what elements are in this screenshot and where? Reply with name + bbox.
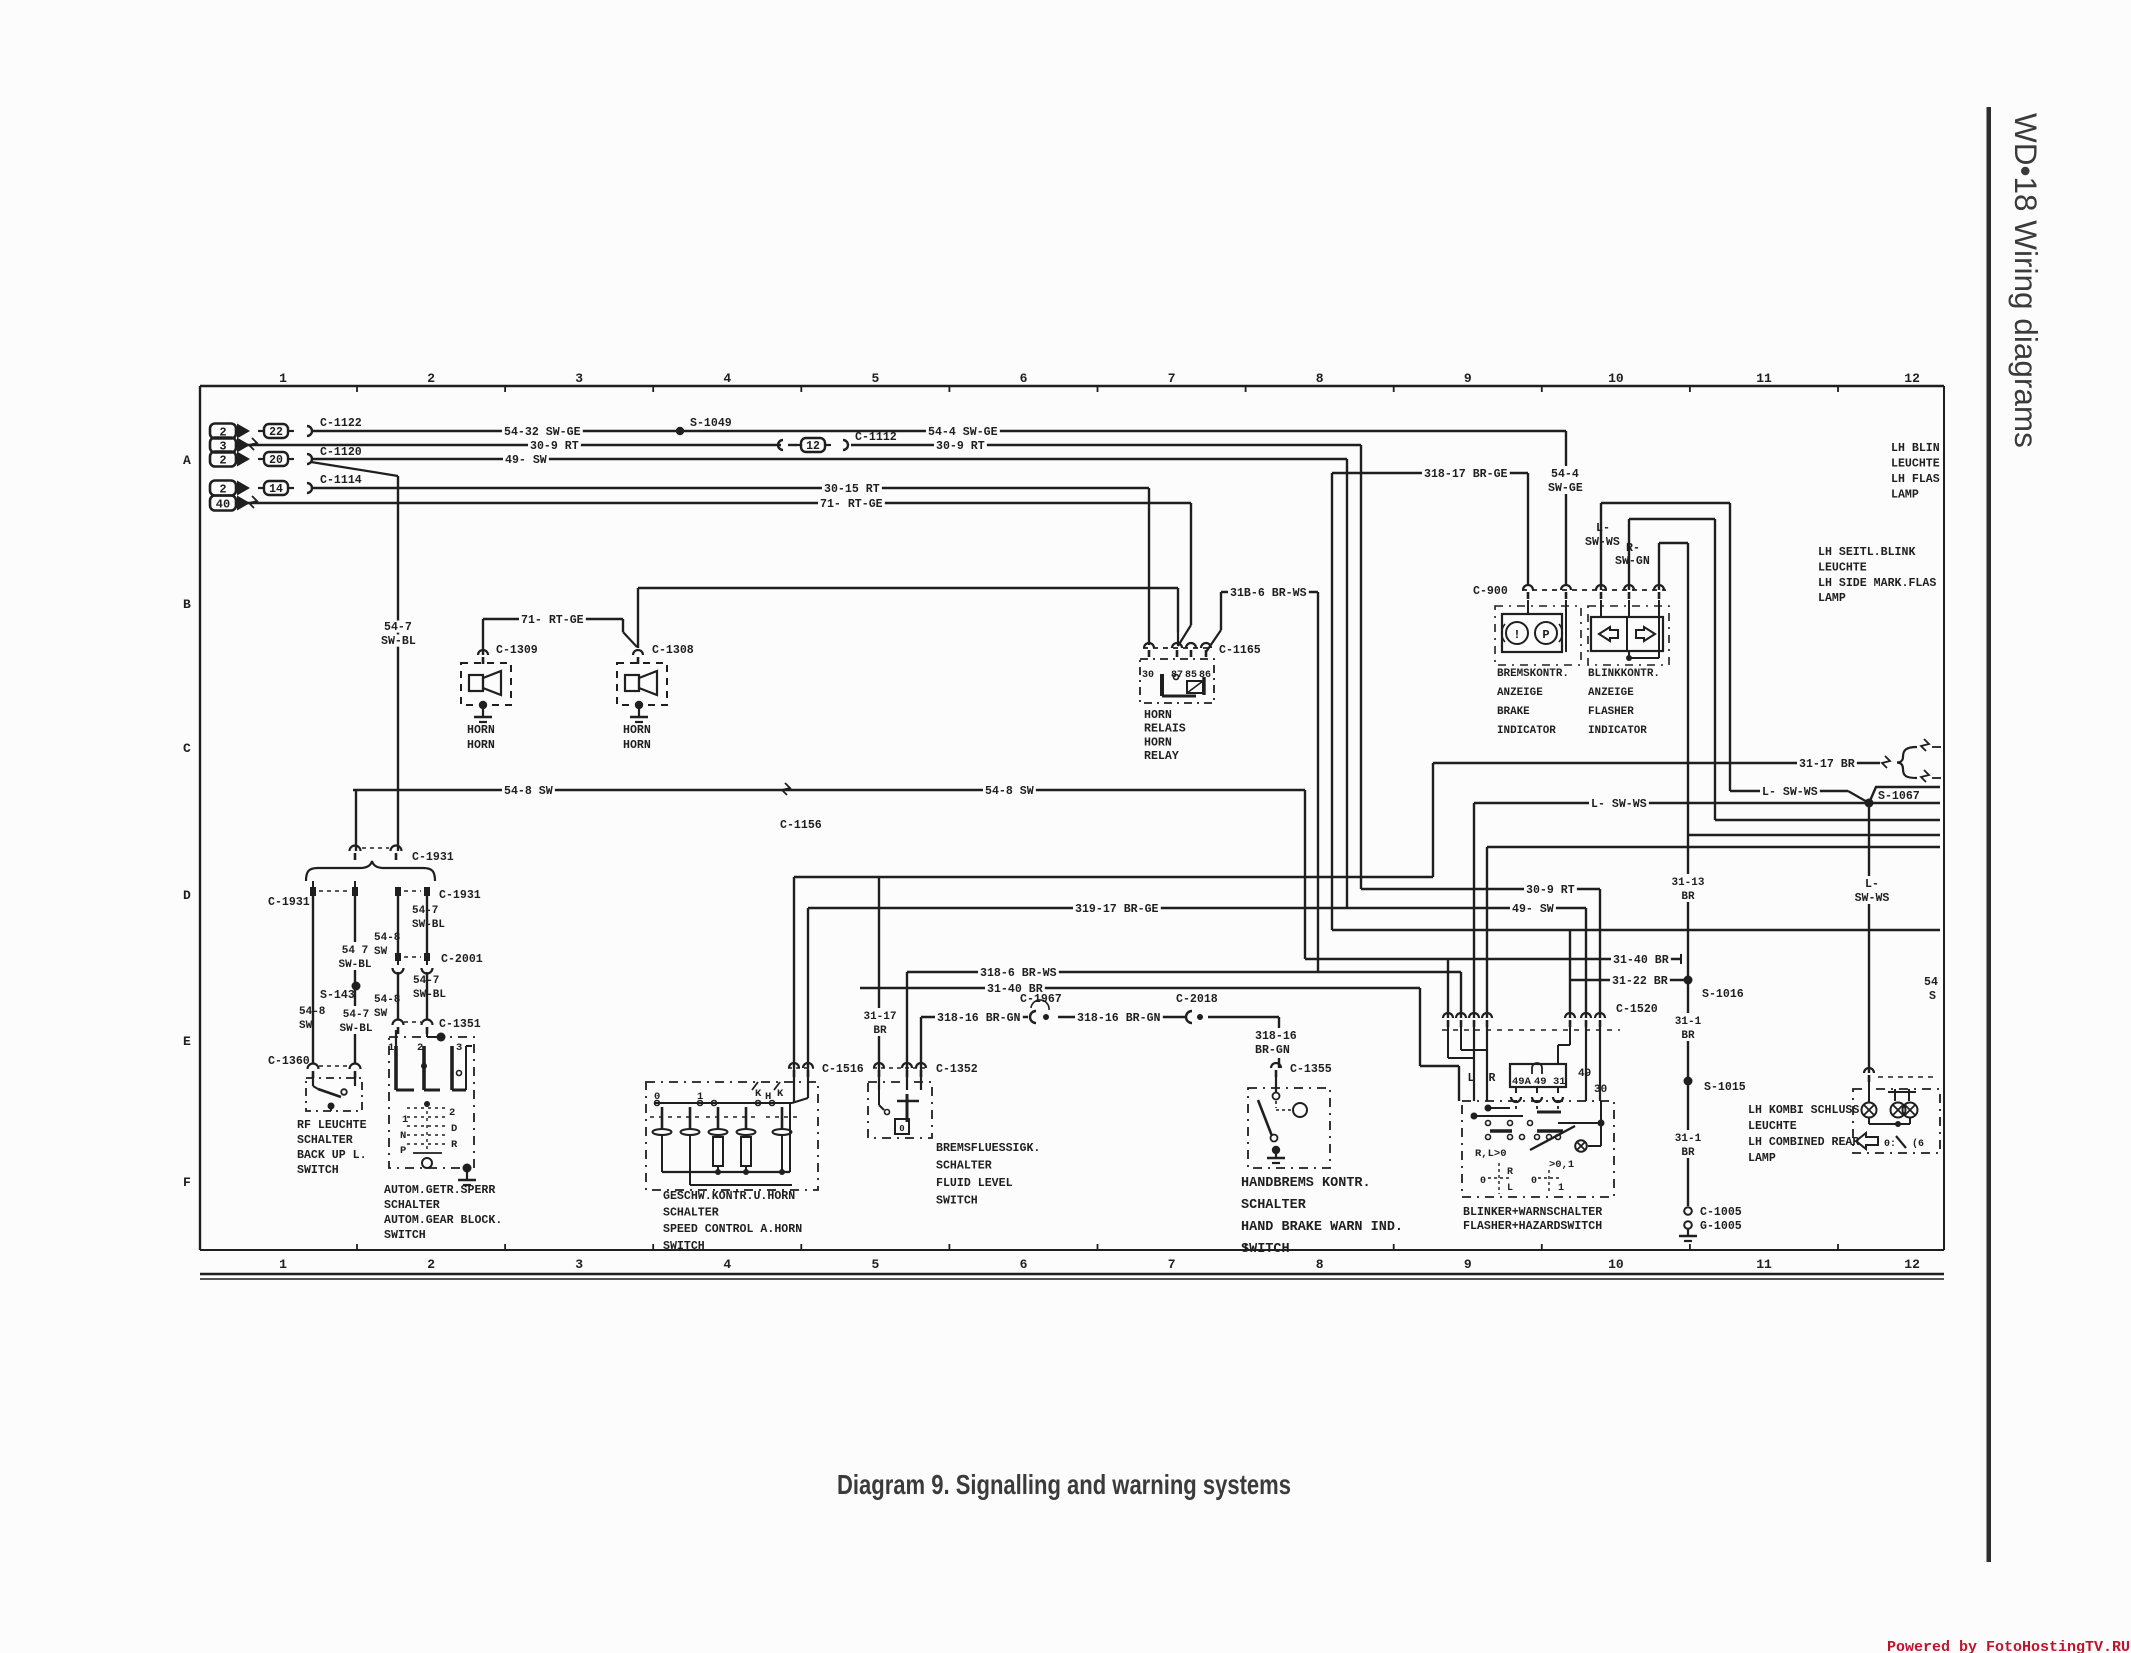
svg-text:54-7: 54-7 — [384, 621, 412, 634]
svg-text:SCHALTER: SCHALTER — [663, 1207, 719, 1220]
svg-text:7: 7 — [1168, 371, 1176, 386]
svg-text:SCHALTER: SCHALTER — [936, 1160, 992, 1173]
svg-text:C-1309: C-1309 — [496, 644, 538, 657]
svg-text:HORN: HORN — [623, 724, 651, 737]
svg-text:0: 0 — [1531, 1176, 1537, 1187]
svg-text:SW: SW — [374, 946, 388, 958]
svg-text:(6: (6 — [1912, 1138, 1924, 1150]
svg-text:30-15 RT: 30-15 RT — [824, 483, 880, 496]
svg-text:RF LEUCHTE: RF LEUCHTE — [297, 1119, 367, 1132]
svg-text:LH SEITL.BLINK: LH SEITL.BLINK — [1818, 546, 1915, 559]
svg-text:HORN: HORN — [623, 739, 651, 752]
svg-text:0: 0 — [899, 1124, 904, 1134]
svg-text:SWITCH: SWITCH — [384, 1229, 426, 1242]
svg-text:C-900: C-900 — [1473, 585, 1508, 598]
svg-text:C-1352: C-1352 — [936, 1063, 978, 1076]
svg-text:SW: SW — [374, 1008, 388, 1020]
svg-text:SPEED CONTROL A.HORN: SPEED CONTROL A.HORN — [663, 1223, 802, 1236]
svg-text:49- SW: 49- SW — [1512, 903, 1554, 916]
svg-text:LH COMBINED REAR: LH COMBINED REAR — [1748, 1136, 1859, 1149]
svg-text:54-7: 54-7 — [412, 905, 438, 917]
svg-text:C-1516: C-1516 — [822, 1063, 864, 1076]
svg-text:R: R — [1489, 1072, 1496, 1085]
svg-text:31-1: 31-1 — [1675, 1133, 1702, 1145]
svg-text:INDICATOR: INDICATOR — [1497, 725, 1556, 737]
svg-text:6: 6 — [1020, 1257, 1028, 1272]
svg-text:12: 12 — [806, 440, 820, 453]
svg-text:D: D — [183, 888, 191, 903]
svg-text:5: 5 — [871, 371, 879, 386]
svg-text:HAND BRAKE WARN IND.: HAND BRAKE WARN IND. — [1241, 1220, 1403, 1235]
svg-text:C-1931: C-1931 — [412, 851, 454, 864]
svg-text:3: 3 — [575, 371, 583, 386]
svg-text:14: 14 — [269, 483, 283, 496]
svg-text:54-8: 54-8 — [374, 932, 401, 944]
svg-text:AUTOM.GEAR BLOCK.: AUTOM.GEAR BLOCK. — [384, 1214, 502, 1227]
svg-text:LEUCHTE: LEUCHTE — [1891, 458, 1940, 471]
svg-text:L-: L- — [1865, 878, 1879, 891]
svg-text:SCHALTER: SCHALTER — [1241, 1198, 1307, 1213]
svg-text:2: 2 — [427, 1257, 435, 1272]
svg-text:P: P — [1542, 628, 1549, 642]
svg-text:BLINKKONTR.: BLINKKONTR. — [1588, 668, 1660, 680]
svg-text:31-17 BR: 31-17 BR — [1799, 758, 1855, 771]
svg-text:SWITCH: SWITCH — [1241, 1242, 1290, 1257]
svg-text:71- RT-GE: 71- RT-GE — [521, 614, 584, 627]
svg-text:LEUCHTE: LEUCHTE — [1748, 1120, 1797, 1133]
svg-text:S-1067: S-1067 — [1878, 790, 1920, 803]
svg-text:49: 49 — [1578, 1068, 1591, 1080]
svg-text:S: S — [1929, 990, 1936, 1003]
svg-text:L- SW-WS: L- SW-WS — [1762, 786, 1818, 799]
svg-text:10: 10 — [1608, 371, 1624, 386]
svg-text:1: 1 — [402, 1114, 408, 1126]
svg-text:R,L>0: R,L>0 — [1475, 1148, 1507, 1160]
svg-text:12: 12 — [1904, 1257, 1920, 1272]
svg-text:85: 85 — [1185, 670, 1197, 681]
svg-text:SCHALTER: SCHALTER — [384, 1199, 440, 1212]
svg-text:BLINKER+WARNSCHALTER: BLINKER+WARNSCHALTER — [1463, 1206, 1602, 1219]
svg-text:54-8 SW: 54-8 SW — [504, 785, 553, 798]
svg-text:C-2018: C-2018 — [1176, 993, 1218, 1006]
svg-text:SWITCH: SWITCH — [663, 1240, 705, 1253]
svg-text:C: C — [183, 741, 191, 756]
svg-text:9: 9 — [1464, 371, 1472, 386]
svg-text:WD•18 Wiring diagrams: WD•18 Wiring diagrams — [2008, 113, 2044, 448]
svg-text:LH FLAS: LH FLAS — [1891, 473, 1940, 486]
svg-text:HANDBREMS KONTR.: HANDBREMS KONTR. — [1241, 1176, 1371, 1191]
svg-text:54-8 SW: 54-8 SW — [985, 785, 1034, 798]
svg-text:5: 5 — [871, 1257, 879, 1272]
svg-text:A: A — [183, 453, 191, 468]
svg-text:11: 11 — [1756, 1257, 1772, 1272]
svg-text:31-13: 31-13 — [1671, 877, 1704, 889]
svg-text:S-1016: S-1016 — [1702, 988, 1744, 1001]
svg-text:C-1520: C-1520 — [1616, 1003, 1658, 1016]
svg-text:6: 6 — [1020, 371, 1028, 386]
svg-text:HORN: HORN — [1144, 736, 1172, 749]
svg-text:BR: BR — [1681, 891, 1695, 903]
svg-text:INDICATOR: INDICATOR — [1588, 725, 1647, 737]
svg-text:30-9 RT: 30-9 RT — [1526, 884, 1575, 897]
svg-text:C-1931: C-1931 — [268, 896, 310, 909]
svg-text:30: 30 — [1142, 670, 1154, 681]
svg-text:Diagram 9. Signalling and warn: Diagram 9. Signalling and warning system… — [837, 1469, 1291, 1500]
svg-text:54-8: 54-8 — [299, 1006, 326, 1018]
svg-text:49A: 49A — [1512, 1076, 1532, 1088]
svg-text:4: 4 — [723, 1257, 731, 1272]
svg-text:C-1120: C-1120 — [320, 446, 362, 459]
svg-text:HORN: HORN — [467, 739, 495, 752]
svg-text:ANZEIGE: ANZEIGE — [1497, 687, 1543, 699]
svg-text:BRAKE: BRAKE — [1497, 706, 1530, 718]
svg-text:C-1122: C-1122 — [320, 417, 362, 430]
svg-text:C-1351: C-1351 — [439, 1018, 481, 1031]
svg-text:31-1: 31-1 — [1675, 1016, 1702, 1028]
svg-text:4: 4 — [723, 371, 731, 386]
svg-text:P: P — [400, 1145, 406, 1157]
svg-text:SCHALTER: SCHALTER — [297, 1134, 353, 1147]
svg-text:RELAY: RELAY — [1144, 750, 1179, 763]
svg-text:B: B — [183, 597, 191, 612]
svg-text:54-7: 54-7 — [343, 1009, 369, 1021]
svg-text:3: 3 — [575, 1257, 583, 1272]
svg-text:318-6 BR-WS: 318-6 BR-WS — [980, 967, 1057, 980]
svg-text:49: 49 — [1534, 1076, 1547, 1088]
svg-text:L-: L- — [1596, 522, 1610, 535]
svg-text:L: L — [1507, 1183, 1513, 1194]
svg-text:9: 9 — [1464, 1257, 1472, 1272]
svg-text:C-1112: C-1112 — [855, 431, 897, 444]
svg-text:11: 11 — [1756, 371, 1772, 386]
svg-text:LEUCHTE: LEUCHTE — [1818, 561, 1867, 574]
svg-text:FLASHER: FLASHER — [1588, 706, 1634, 718]
svg-text:49- SW: 49- SW — [505, 454, 547, 467]
svg-text:0: 0 — [1480, 1176, 1486, 1187]
svg-text:31-22 BR: 31-22 BR — [1612, 975, 1668, 988]
svg-text:SW-GN: SW-GN — [1615, 555, 1650, 568]
svg-text:318-17 BR-GE: 318-17 BR-GE — [1424, 468, 1508, 481]
svg-text:Powered by FotoHostingTV.RU: Powered by FotoHostingTV.RU — [1887, 1639, 2130, 1653]
svg-text:SWITCH: SWITCH — [936, 1195, 978, 1208]
svg-text:GESCHW.KONTR.U.HORN: GESCHW.KONTR.U.HORN — [663, 1190, 795, 1203]
svg-text:2: 2 — [449, 1107, 455, 1119]
svg-text:30: 30 — [1594, 1084, 1607, 1096]
svg-text:319-17 BR-GE: 319-17 BR-GE — [1075, 903, 1159, 916]
svg-text:S-1015: S-1015 — [1704, 1081, 1746, 1094]
svg-text:C-1005: C-1005 — [1700, 1206, 1742, 1219]
svg-text:SW-BL: SW-BL — [381, 635, 416, 648]
svg-text:C-1931: C-1931 — [439, 889, 481, 902]
svg-text:>0,1: >0,1 — [1549, 1159, 1574, 1171]
svg-text:SW-BL: SW-BL — [413, 989, 446, 1001]
svg-text:L: L — [1468, 1072, 1475, 1085]
svg-text:BR: BR — [1681, 1030, 1695, 1042]
svg-text:54: 54 — [1924, 976, 1938, 989]
svg-text:20: 20 — [269, 454, 283, 467]
svg-text:8: 8 — [1316, 1257, 1324, 1272]
svg-text:7: 7 — [1168, 1257, 1176, 1272]
svg-text:LAMP: LAMP — [1748, 1152, 1776, 1165]
svg-text:31-40 BR: 31-40 BR — [1613, 954, 1669, 967]
svg-text:1: 1 — [388, 1042, 394, 1054]
svg-text:54-4 SW-GE: 54-4 SW-GE — [928, 426, 998, 439]
svg-text:1: 1 — [279, 1257, 287, 1272]
svg-text:40: 40 — [216, 498, 230, 512]
svg-text:8: 8 — [1316, 371, 1324, 386]
svg-text:FLASHER+HAZARDSWITCH: FLASHER+HAZARDSWITCH — [1463, 1220, 1602, 1233]
svg-text:SW-BL: SW-BL — [338, 959, 371, 971]
svg-text:E: E — [183, 1034, 191, 1049]
svg-text:LH BLIN: LH BLIN — [1891, 442, 1940, 455]
svg-text:C-1114: C-1114 — [320, 474, 362, 487]
svg-text:30-9 RT: 30-9 RT — [530, 440, 579, 453]
svg-text:RELAIS: RELAIS — [1144, 723, 1186, 736]
svg-text:BREMSKONTR.: BREMSKONTR. — [1497, 668, 1569, 680]
svg-text:2: 2 — [427, 371, 435, 386]
svg-text:C-2001: C-2001 — [441, 953, 483, 966]
svg-text:K: K — [755, 1088, 762, 1100]
svg-text:R: R — [1507, 1167, 1513, 1178]
svg-text:R: R — [451, 1139, 458, 1151]
svg-text:SW-GE: SW-GE — [1548, 482, 1583, 495]
svg-text:318-16 BR-GN: 318-16 BR-GN — [937, 1012, 1021, 1025]
svg-text:S-143: S-143 — [320, 989, 355, 1002]
svg-text:D: D — [451, 1123, 457, 1135]
svg-text:C-1165: C-1165 — [1219, 644, 1261, 657]
svg-text:BR: BR — [873, 1025, 887, 1037]
svg-text:SW-BL: SW-BL — [412, 919, 445, 931]
svg-text:318-16 BR-GN: 318-16 BR-GN — [1077, 1012, 1161, 1025]
svg-text:SW-WS: SW-WS — [1585, 536, 1620, 549]
svg-text:0:: 0: — [1884, 1139, 1896, 1150]
svg-text:54 7: 54 7 — [342, 945, 368, 957]
svg-text:54-4: 54-4 — [1551, 468, 1579, 481]
svg-text:SW-WS: SW-WS — [1855, 892, 1890, 905]
svg-text:BREMSFLUESSIGK.: BREMSFLUESSIGK. — [936, 1142, 1040, 1155]
svg-text:22: 22 — [269, 426, 283, 439]
svg-text:SW-BL: SW-BL — [339, 1023, 372, 1035]
svg-text:71- RT-GE: 71- RT-GE — [820, 498, 883, 511]
svg-text:S-1049: S-1049 — [690, 417, 732, 430]
svg-text:F: F — [183, 1175, 191, 1190]
svg-text:AUTOM.GETR.SPERR: AUTOM.GETR.SPERR — [384, 1184, 495, 1197]
svg-text:SWITCH: SWITCH — [297, 1164, 339, 1177]
svg-text:31B-6 BR-WS: 31B-6 BR-WS — [1230, 587, 1307, 600]
svg-text:FLUID LEVEL: FLUID LEVEL — [936, 1177, 1013, 1190]
svg-text:30-9 RT: 30-9 RT — [936, 440, 985, 453]
svg-text:L- SW-WS: L- SW-WS — [1591, 798, 1647, 811]
svg-text:54-8: 54-8 — [374, 994, 401, 1006]
svg-text:SW: SW — [299, 1020, 313, 1032]
svg-text:C-1360: C-1360 — [268, 1055, 310, 1068]
svg-text:31-17: 31-17 — [863, 1011, 896, 1023]
svg-text:C-1308: C-1308 — [652, 644, 694, 657]
svg-text:C-1355: C-1355 — [1290, 1063, 1332, 1076]
svg-text:N: N — [400, 1130, 406, 1142]
svg-text:31: 31 — [1553, 1076, 1566, 1088]
svg-text:BR: BR — [1681, 1147, 1695, 1159]
svg-text:1: 1 — [1558, 1183, 1564, 1194]
svg-text:LAMP: LAMP — [1818, 592, 1846, 605]
svg-text:12: 12 — [1904, 371, 1920, 386]
svg-text:54-32 SW-GE: 54-32 SW-GE — [504, 426, 581, 439]
svg-text:1: 1 — [279, 371, 287, 386]
svg-text:K: K — [777, 1088, 784, 1100]
svg-text:BACK UP L.: BACK UP L. — [297, 1149, 367, 1162]
svg-text:ANZEIGE: ANZEIGE — [1588, 687, 1634, 699]
svg-text:LH KOMBI SCHLUSS: LH KOMBI SCHLUSS — [1748, 1104, 1859, 1117]
svg-text:G-1005: G-1005 — [1700, 1220, 1742, 1233]
svg-text:LAMP: LAMP — [1891, 489, 1919, 502]
svg-text:C-1967: C-1967 — [1020, 993, 1062, 1006]
svg-text:BR-GN: BR-GN — [1255, 1044, 1290, 1057]
svg-text:10: 10 — [1608, 1257, 1624, 1272]
svg-text:2: 2 — [219, 454, 226, 468]
svg-text:LH SIDE MARK.FLAS: LH SIDE MARK.FLAS — [1818, 577, 1936, 590]
svg-text:C-1156: C-1156 — [780, 819, 822, 832]
svg-text:3: 3 — [456, 1042, 462, 1054]
svg-text:HORN: HORN — [467, 724, 495, 737]
svg-text:318-16: 318-16 — [1255, 1030, 1297, 1043]
svg-text:!: ! — [1513, 628, 1520, 642]
svg-text:HORN: HORN — [1144, 709, 1172, 722]
